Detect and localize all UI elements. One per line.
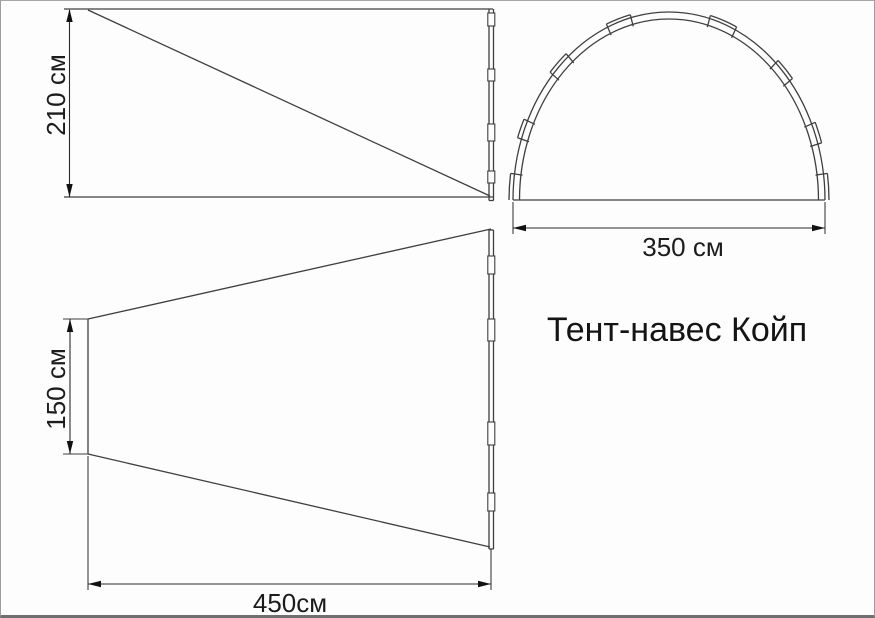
top-view: 150 см 450см — [41, 229, 495, 618]
arrow-down-icon — [66, 184, 72, 197]
top-view-length-dimension: 450см — [88, 456, 491, 618]
drawing-page: 210 см — [0, 0, 875, 618]
pole-joint-sleeve — [488, 124, 495, 141]
front-view-width-label: 350 см — [642, 232, 723, 262]
arch-outer-curve — [513, 12, 825, 200]
front-view: 350 см — [509, 12, 829, 262]
pole-joint-sleeve — [488, 171, 495, 183]
side-view-height-dimension: 210 см — [41, 9, 73, 197]
top-view-lower-edge — [88, 454, 490, 547]
arrow-left-icon — [513, 225, 526, 232]
top-view-length-label: 450см — [253, 588, 327, 618]
top-view-rear-width-label: 150 см — [41, 348, 71, 429]
top-view-pole — [488, 230, 495, 549]
side-view-pole — [488, 9, 495, 201]
pole-joint-sleeve — [488, 422, 495, 445]
pole-joint-sleeve — [488, 69, 495, 81]
tent-technical-drawing: 210 см — [1, 1, 875, 618]
side-view: 210 см — [41, 9, 495, 201]
top-view-rear-width-dimension: 150 см — [41, 319, 89, 454]
arch-joint-sleeves — [509, 15, 829, 200]
arrow-right-icon — [812, 225, 825, 232]
arrow-right-icon — [478, 581, 491, 588]
side-view-diagonal-edge — [88, 10, 490, 196]
arrow-up-icon — [67, 319, 73, 332]
top-view-upper-edge — [88, 229, 491, 319]
pole-joint-sleeve — [488, 319, 495, 341]
pole-joint-sleeve — [488, 493, 495, 511]
pole-joint-sleeve — [488, 256, 495, 274]
drawing-title: Тент-навес Койп — [547, 311, 807, 349]
arrow-up-icon — [66, 9, 72, 22]
arrow-down-icon — [67, 441, 73, 454]
front-view-width-dimension: 350 см — [513, 202, 825, 262]
arch-inner-curve — [520, 19, 819, 200]
side-view-height-label: 210 см — [41, 54, 71, 135]
arrow-left-icon — [88, 581, 101, 588]
pole-joint-sleeve — [488, 13, 495, 26]
